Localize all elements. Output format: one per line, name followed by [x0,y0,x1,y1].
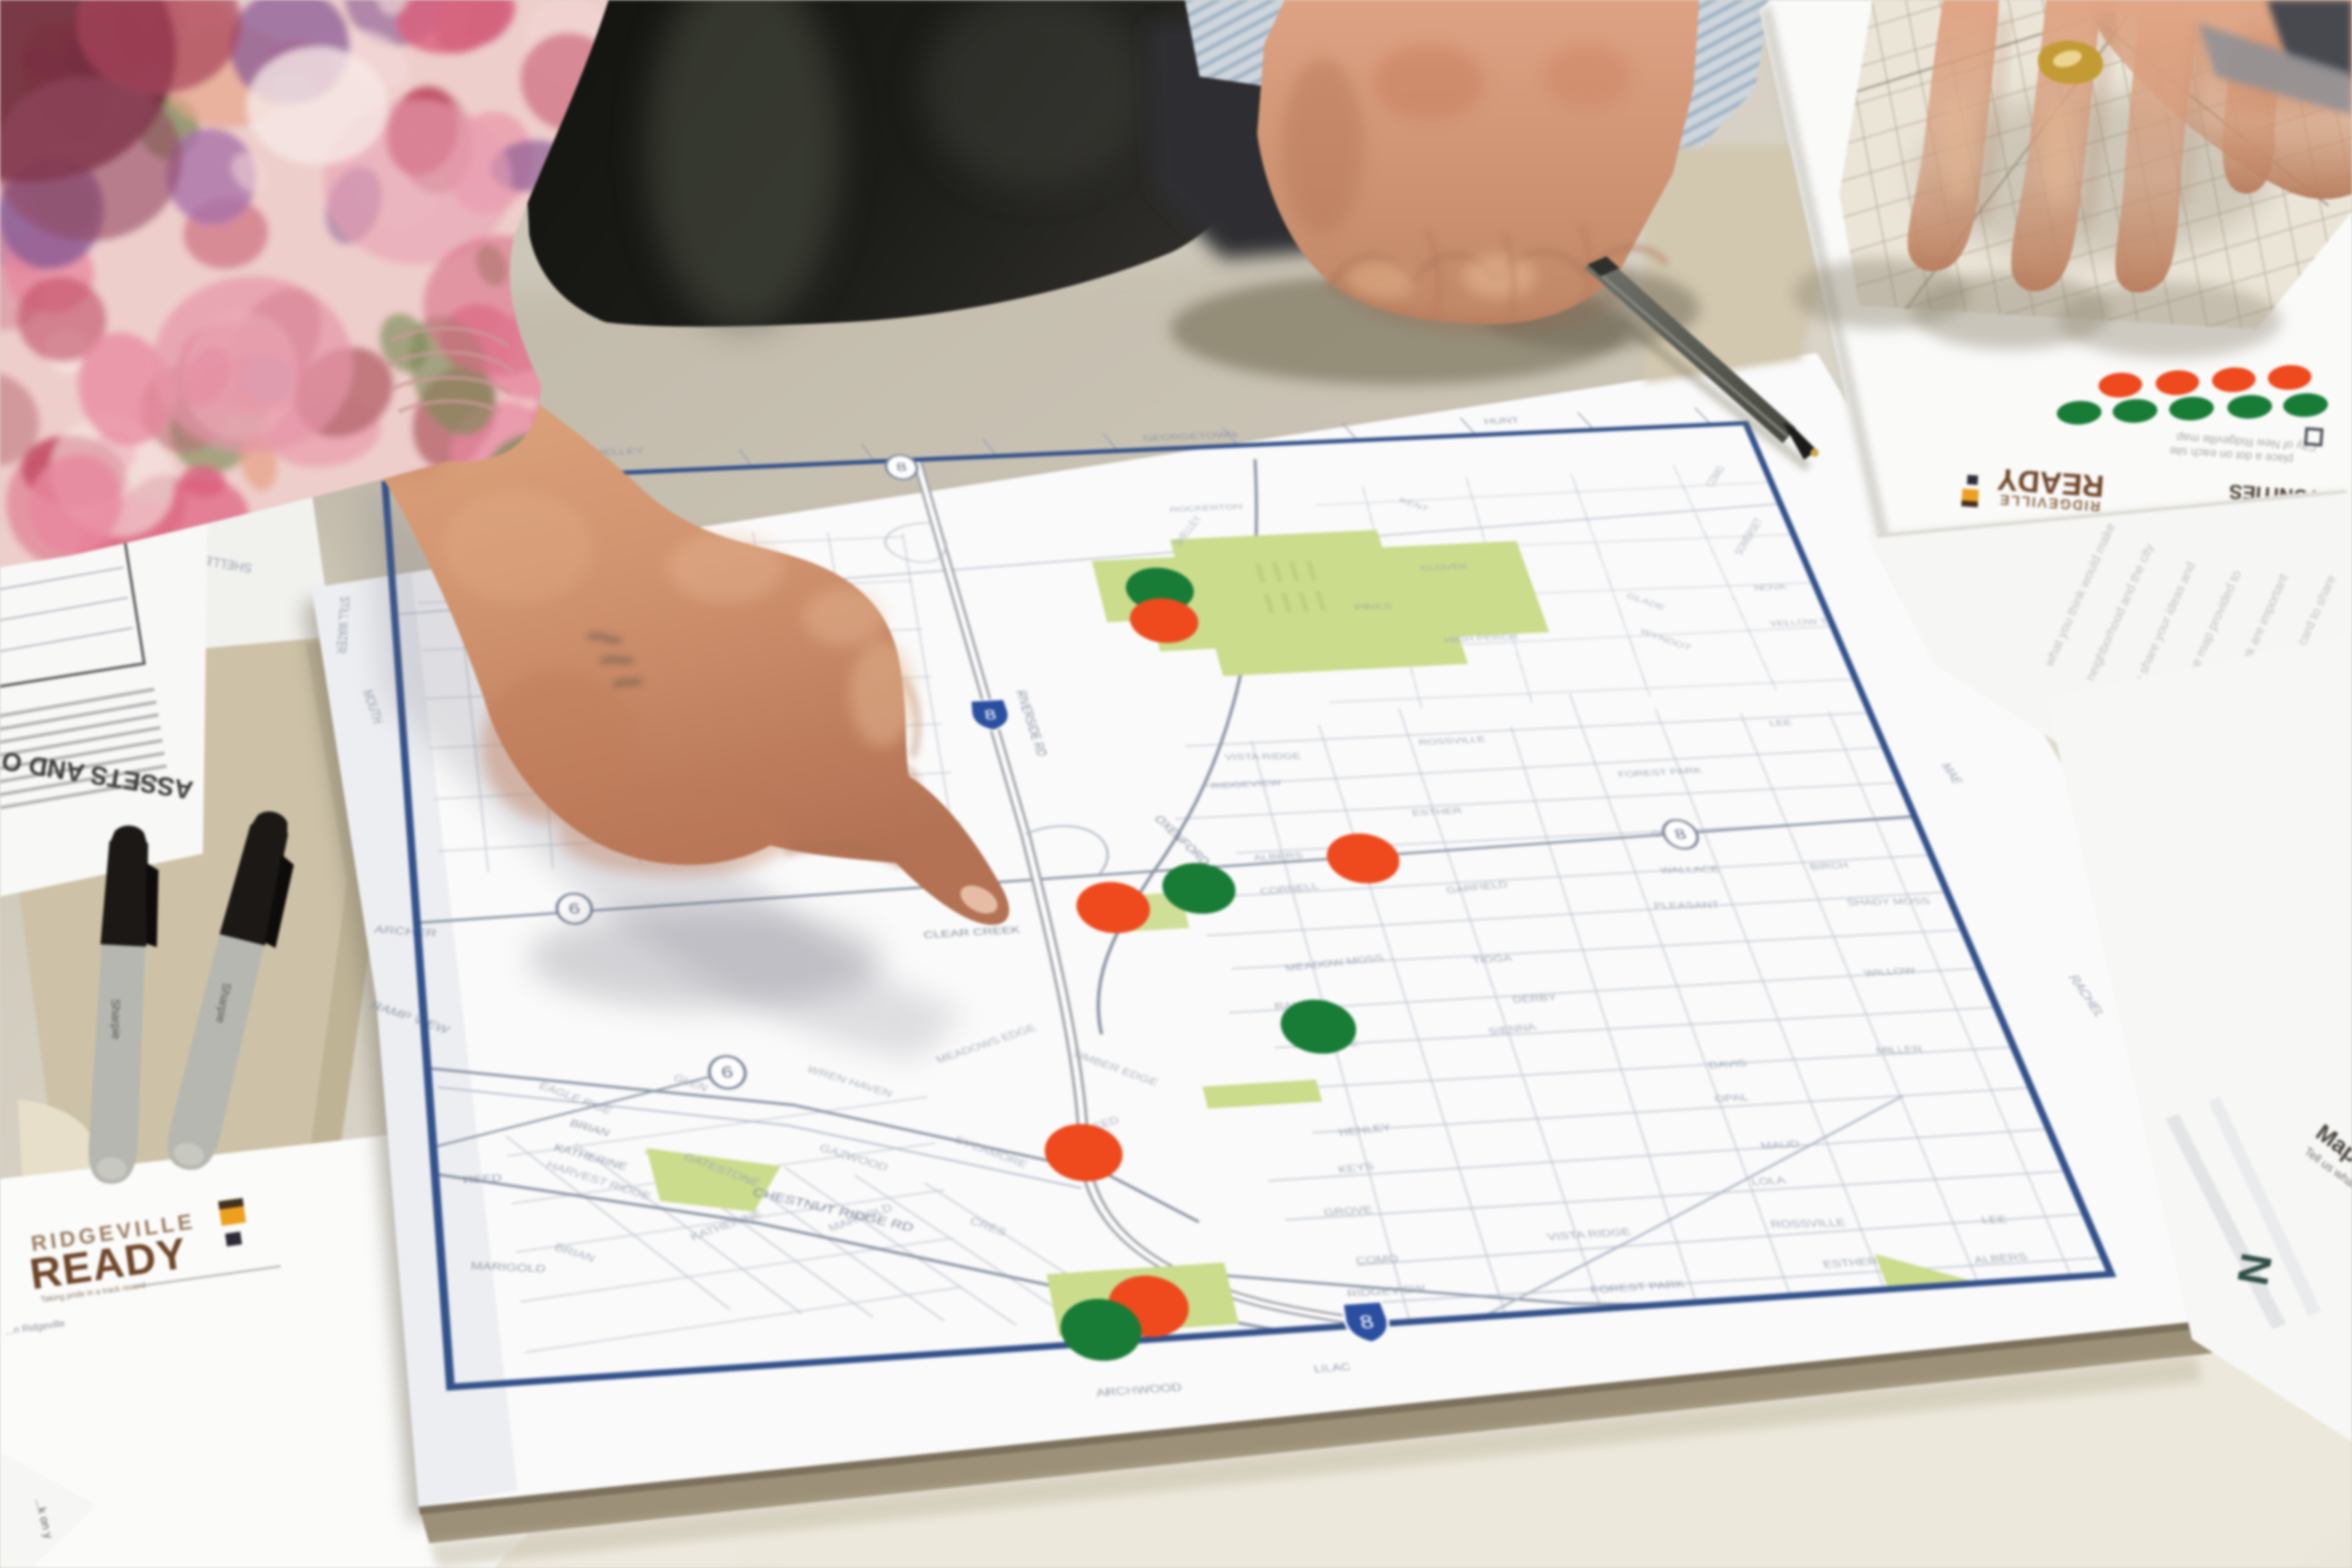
svg-text:Sharpie: Sharpie [109,999,122,1039]
